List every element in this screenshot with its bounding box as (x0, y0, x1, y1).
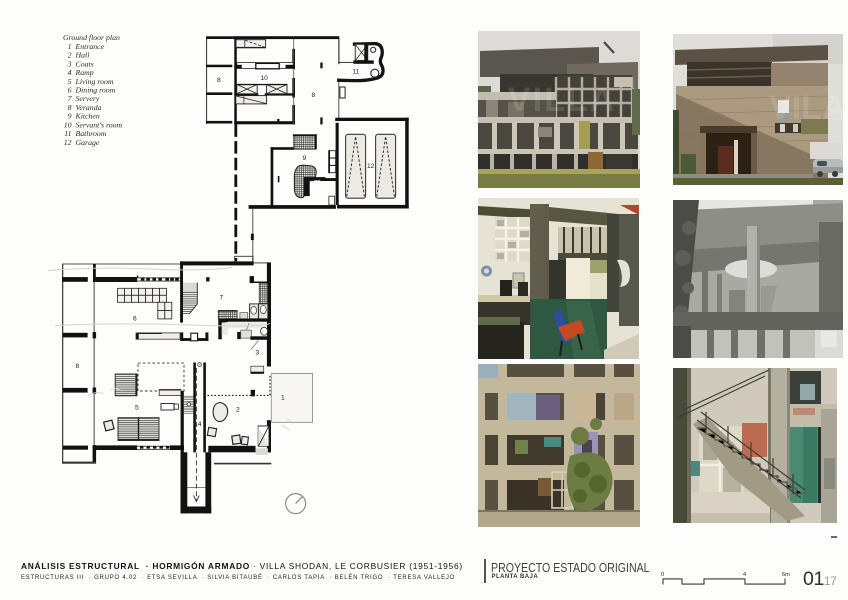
svg-text:Ground floor plan: Ground floor plan (63, 33, 120, 42)
svg-text:5: 5 (68, 77, 72, 86)
svg-text:9: 9 (68, 112, 72, 121)
svg-text:3: 3 (256, 350, 260, 357)
svg-text:9: 9 (303, 155, 307, 162)
svg-text:Bathroom: Bathroom (76, 129, 107, 138)
svg-text:2: 2 (236, 407, 240, 414)
svg-text:7: 7 (68, 94, 73, 103)
svg-text:Hall: Hall (75, 51, 90, 60)
svg-text:4: 4 (68, 68, 72, 77)
svg-text:3: 3 (67, 59, 72, 68)
svg-text:6: 6 (133, 316, 137, 323)
svg-text:4: 4 (198, 421, 202, 428)
svg-text:2: 2 (68, 51, 72, 60)
svg-text:12: 12 (367, 163, 375, 170)
svg-text:1: 1 (68, 42, 72, 51)
svg-text:Entrance: Entrance (75, 42, 105, 51)
svg-text:8: 8 (312, 92, 316, 99)
svg-text:Coats: Coats (76, 59, 94, 68)
svg-text:5: 5 (135, 405, 139, 412)
svg-text:11: 11 (64, 129, 71, 138)
svg-text:Servant's room: Servant's room (76, 120, 123, 129)
svg-text:Dining room: Dining room (75, 86, 116, 95)
svg-text:8: 8 (217, 77, 221, 84)
svg-text:Ramp: Ramp (75, 68, 94, 77)
svg-text:Garage: Garage (76, 138, 100, 147)
svg-text:10: 10 (261, 75, 269, 82)
svg-text:8: 8 (76, 363, 80, 370)
svg-text:0: 0 (661, 572, 664, 578)
svg-text:Kitchen: Kitchen (75, 112, 100, 121)
svg-text:10: 10 (64, 120, 72, 129)
svg-text:1: 1 (281, 395, 285, 402)
svg-text:Servery: Servery (76, 94, 100, 103)
svg-text:VILLA: VILLA (508, 81, 616, 119)
svg-text:6m: 6m (782, 572, 790, 578)
svg-text:11: 11 (353, 69, 360, 76)
svg-text:7: 7 (220, 295, 224, 302)
svg-text:VILA: VILA (769, 89, 843, 127)
svg-text:Living room: Living room (75, 77, 114, 86)
svg-text:Veranda: Veranda (76, 103, 102, 112)
svg-text:6: 6 (68, 86, 72, 95)
svg-text:8: 8 (68, 103, 72, 112)
svg-text:4: 4 (743, 572, 746, 578)
svg-text:12: 12 (64, 138, 72, 147)
